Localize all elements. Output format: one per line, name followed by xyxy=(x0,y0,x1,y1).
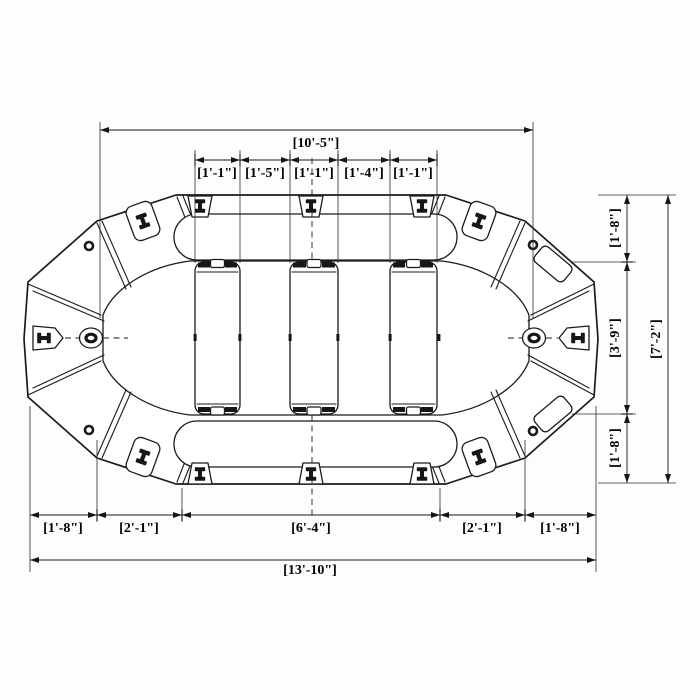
valve-icon-top-3 xyxy=(410,196,434,217)
dim-bottom-seg-2: [2'-1"] xyxy=(119,521,159,536)
valve-icon-bottom-2 xyxy=(299,463,323,484)
thwart-1 xyxy=(194,260,242,416)
valve-icon-bottom-3 xyxy=(410,463,434,484)
dim-bottom-seg-4: [2'-1"] xyxy=(462,521,502,536)
top-side-chamber-tube xyxy=(174,214,457,260)
hull xyxy=(24,158,598,516)
dim-thwart-gap-1: [1'-5"] xyxy=(245,166,285,181)
dim-bottom-seg-1: [1'-8"] xyxy=(43,521,83,536)
thwart-3 xyxy=(389,260,441,416)
dim-right-middle-segment: [3'-9"] xyxy=(608,318,623,358)
raft-technical-drawing: [10'-5"] [1'-1"] [1'-5"] [1'-1"] [1'-4"]… xyxy=(0,0,700,700)
valve-icon-top-1 xyxy=(188,196,212,217)
dim-bottom-overall: [13'-10"] xyxy=(283,563,337,578)
bottom-side-chamber-tube xyxy=(174,421,457,467)
valve-icon-top-2 xyxy=(299,196,323,217)
dim-bottom-seg-5: [1'-8"] xyxy=(540,521,580,536)
dim-thwart-3-width: [1'-1"] xyxy=(393,166,433,181)
thwart-2 xyxy=(289,260,340,416)
dim-right-top-segment: [1'-8"] xyxy=(608,208,623,248)
dim-right-overall: [7'-2"] xyxy=(649,319,664,359)
dim-top-overall: [10'-5"] xyxy=(293,136,340,151)
dim-thwart-1-width: [1'-1"] xyxy=(197,166,237,181)
dim-bottom-seg-3: [6'-4"] xyxy=(291,521,331,536)
dim-thwart-2-width: [1'-1"] xyxy=(294,166,334,181)
stern-handle-ring xyxy=(523,328,546,348)
drawing-sheet: [10'-5"] [1'-1"] [1'-5"] [1'-1"] [1'-4"]… xyxy=(0,0,700,700)
bow-handle-ring xyxy=(80,328,103,348)
dim-thwart-gap-2: [1'-4"] xyxy=(344,166,384,181)
dim-right-bottom-segment: [1'-8"] xyxy=(608,428,623,468)
valve-icon-bottom-1 xyxy=(188,463,212,484)
